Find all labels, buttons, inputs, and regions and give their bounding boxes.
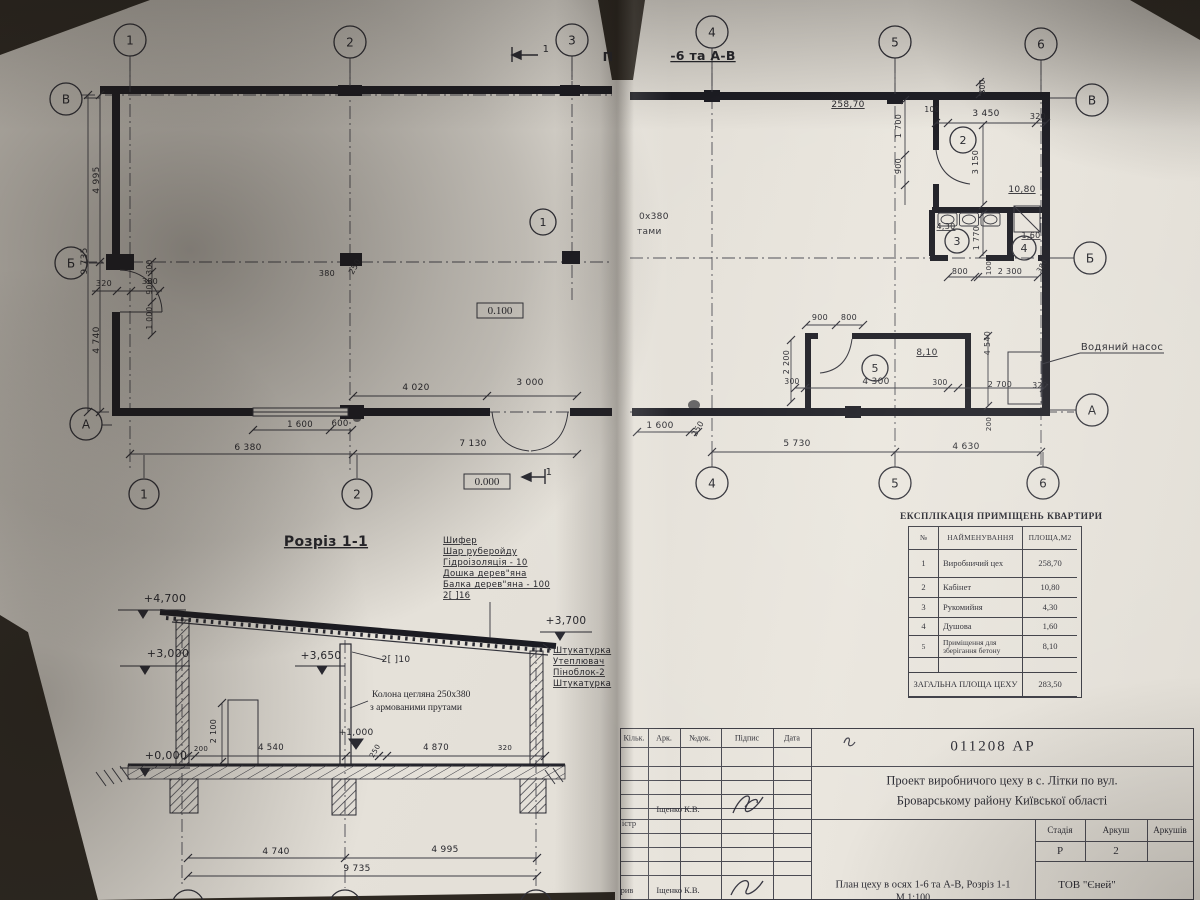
row-name: Виробничий цех: [939, 550, 1023, 578]
dim-label: з армованими прутами: [370, 703, 462, 713]
row-area: 1,60: [1023, 618, 1077, 636]
foundation: [332, 779, 356, 815]
dim-label: 4 540: [983, 331, 992, 355]
section-marker-label: 1: [543, 44, 550, 55]
wall-left-hatched: [176, 620, 189, 765]
axis-bubble: 1: [530, 209, 556, 235]
row-num: 2: [909, 578, 939, 598]
dim-label: Утеплювач: [553, 657, 604, 667]
svg-text:4: 4: [708, 476, 716, 490]
row-num: [909, 658, 939, 673]
title-block: Кільк. Арк. №док. Підпис Дата 011208 АР …: [620, 728, 1194, 900]
dim-label: 6 380: [234, 443, 261, 453]
svg-text:4: 4: [708, 25, 716, 39]
axis-bubble: 1: [129, 479, 159, 509]
dim-label: 800: [952, 267, 968, 276]
dim-label: +4,700: [144, 592, 187, 605]
roof-slab: [160, 612, 556, 646]
dim-label: 4 995: [431, 845, 458, 855]
dim-label: 9 735: [343, 864, 370, 874]
total-label: ЗАГАЛЬНА ПЛОЩА ЦЕХУ: [909, 673, 1023, 697]
right-plan: [630, 48, 1164, 467]
axis-bubble: 2: [950, 127, 976, 153]
dim-label: 5 730: [783, 439, 810, 449]
explication-title: ЕКСПЛІКАЦІЯ ПРИМІЩЕНЬ КВАРТИРИ: [900, 512, 1090, 522]
axis-bubble: [329, 890, 361, 900]
dim-label: Шифер: [443, 536, 477, 546]
svg-text:5: 5: [872, 362, 879, 375]
axis-bubble: 6: [1027, 467, 1059, 499]
row-name: Рукомийня: [939, 598, 1023, 618]
dim-label: 1 600: [646, 421, 673, 431]
dim-label: 200: [978, 79, 987, 94]
ink-blot: [688, 400, 700, 410]
column: [340, 644, 351, 765]
dim-label: 2 700: [988, 380, 1012, 389]
row-name: Душова: [939, 618, 1023, 636]
dim-label: 1 700: [894, 114, 903, 138]
dim-label: Колона цегляна 250х380: [372, 690, 471, 700]
water-pump-symbol: [1008, 352, 1164, 404]
dim-label: 900: [145, 279, 154, 294]
row-name: [939, 658, 1023, 673]
dim-label: 4 630: [952, 442, 979, 452]
dim-label: 300: [145, 259, 154, 274]
row-area: 10,80: [1023, 578, 1077, 598]
dim-label: 4 740: [92, 326, 102, 353]
svg-text:А: А: [82, 417, 91, 431]
level-label: 0.100: [488, 305, 513, 317]
svg-text:2: 2: [960, 134, 967, 147]
level-label: 0.000: [475, 476, 500, 488]
dim-label: 600: [331, 419, 348, 429]
foundation: [520, 779, 546, 813]
svg-text:3: 3: [568, 33, 576, 47]
section-cut-marker: [512, 47, 545, 484]
dimension-ticks: [184, 699, 549, 880]
svg-text:3: 3: [954, 235, 961, 248]
svg-text:2: 2: [346, 35, 354, 49]
svg-text:А: А: [1088, 403, 1097, 417]
total-area: 283,50: [1023, 673, 1077, 697]
axis-bubble: В: [1076, 84, 1108, 116]
note-fragment: тами: [637, 227, 662, 237]
row-name: Приміщення для зберігання бетону: [939, 636, 1023, 658]
col-header-name: НАЙМЕНУВАННЯ: [939, 527, 1023, 550]
svg-text:6: 6: [1039, 476, 1047, 490]
dim-label: 320: [1030, 112, 1046, 121]
photo-of-blueprint: П-6 та А-В4 9959 7354 7403203803009001 0…: [0, 0, 1200, 900]
dim-label: 2 300: [998, 267, 1022, 276]
dim-label: 4 540: [258, 743, 284, 753]
dim-label: Шар руберойду: [443, 547, 517, 557]
dim-label: 300: [932, 378, 947, 387]
svg-text:1: 1: [126, 33, 134, 47]
row-area: 4,30: [1023, 598, 1077, 618]
dim-label: 4 995: [92, 166, 102, 193]
explication-table: ЕКСПЛІКАЦІЯ ПРИМІЩЕНЬ КВАРТИРИ № НАЙМЕНУ…: [908, 512, 1084, 698]
dim-label: 4 020: [402, 383, 429, 393]
svg-text:Б: Б: [1086, 251, 1094, 265]
axis-bubble: 5: [879, 26, 911, 58]
svg-text:1: 1: [540, 216, 547, 229]
section-title: Розріз 1-1: [284, 534, 368, 550]
door-opening: [228, 700, 258, 765]
dim-label: 320: [1032, 381, 1047, 390]
wall-right-hatched: [530, 651, 543, 765]
dim-label: 3 450: [972, 109, 999, 119]
dim-label: 800: [841, 313, 857, 322]
dim-label: 258,70: [831, 100, 864, 110]
axis-bubble: 1: [114, 24, 146, 56]
dim-label: 320: [96, 279, 112, 288]
axis-bubble: А: [70, 408, 102, 440]
foundation: [170, 779, 198, 813]
axis-bubble: 3: [556, 24, 588, 56]
axis-bubble: 2: [334, 26, 366, 58]
dim-label: 320: [498, 744, 512, 752]
window-symbol: [253, 408, 348, 416]
svg-text:4: 4: [1021, 242, 1028, 255]
row-area: 258,70: [1023, 550, 1077, 578]
section-drawing: [96, 602, 592, 888]
dim-label: 4 870: [423, 743, 449, 753]
column-blocks: [106, 85, 580, 419]
dim-label: 200: [194, 745, 208, 753]
row-num: 3: [909, 598, 939, 618]
row-num: 4: [909, 618, 939, 636]
dim-label: +3,000: [147, 647, 190, 660]
axis-bubble: 5: [879, 467, 911, 499]
axis-bubble: 4: [696, 467, 728, 499]
svg-text:В: В: [62, 92, 70, 106]
dim-label: Дошка дерев"яна: [443, 569, 527, 579]
dim-label: 3 150: [971, 150, 980, 174]
dim-label: 1 600: [287, 420, 313, 430]
dim-label: 250: [368, 743, 382, 759]
svg-text:Б: Б: [67, 256, 75, 270]
dim-label: 1 770: [972, 226, 981, 250]
dim-label: 100: [924, 105, 939, 114]
dim-label: Балка дерев"яна - 100: [443, 580, 550, 590]
axis-bubble: В: [50, 83, 82, 115]
sheet-title-fragment: -6 та А-В: [670, 48, 735, 63]
section-marker-label: 1: [546, 467, 553, 478]
axis-bubble: 6: [1025, 28, 1057, 60]
axis-bubble: 3: [945, 229, 969, 253]
dim-label: +1,000: [338, 728, 373, 738]
walls: [100, 86, 612, 416]
svg-text:6: 6: [1037, 37, 1045, 51]
note-fragment: 0х380: [639, 212, 669, 222]
dim-label: 4 740: [262, 847, 289, 857]
note-water-pump: Водяний насос: [1081, 342, 1163, 353]
axis-bubble: А: [1076, 394, 1108, 426]
axis-bubble: Б: [1074, 242, 1106, 274]
sheet-title-fragment: П: [603, 49, 614, 64]
dim-label: 380: [319, 269, 335, 278]
axis-bubble: 4: [696, 16, 728, 48]
handwritten-signatures: [621, 729, 1193, 899]
dim-label: 10,80: [1008, 185, 1035, 195]
row-name: Кабінет: [939, 578, 1023, 598]
dim-label: 1 000: [145, 307, 154, 330]
dim-label: 8,10: [916, 348, 937, 358]
row-area: 8,10: [1023, 636, 1077, 658]
dim-label: Піноблок-2: [553, 668, 605, 678]
dim-label: +0,000: [145, 749, 188, 762]
dim-label: 2[ ]10: [382, 655, 411, 665]
dim-label: 2[ ]16: [443, 591, 470, 601]
row-area: [1023, 658, 1077, 673]
dim-label: 900: [894, 158, 903, 174]
dim-label: Гідроізоляція - 10: [443, 558, 528, 568]
walls: [630, 92, 1050, 412]
dim-label: Штукатурка: [553, 646, 611, 656]
axis-bubble: 2: [342, 479, 372, 509]
dim-label: 3 000: [516, 378, 543, 388]
ink-blot: [847, 406, 857, 414]
dim-label: 100: [985, 261, 993, 275]
svg-text:5: 5: [891, 476, 899, 490]
dim-label: 900: [812, 313, 828, 322]
dim-label: 250: [690, 419, 706, 438]
dim-label: 300: [784, 377, 799, 386]
dim-label: 2 100: [209, 719, 218, 743]
floor-hatch-band: [128, 765, 565, 779]
axis-bubble: [520, 890, 552, 900]
row-num: 1: [909, 550, 939, 578]
dim-label: Штукатурка: [553, 679, 611, 689]
row-num: 5: [909, 636, 939, 658]
dim-label: +3,650: [301, 650, 342, 662]
dim-label: 7 130: [459, 439, 486, 449]
svg-text:5: 5: [891, 35, 899, 49]
dim-label: 2 200: [782, 350, 791, 374]
col-header-area: ПЛОЩА,М2: [1023, 527, 1077, 550]
svg-text:В: В: [1088, 93, 1096, 107]
dim-label: 200: [985, 417, 993, 431]
svg-text:2: 2: [353, 487, 361, 501]
ink-blot: [353, 416, 361, 422]
explication-grid: № НАЙМЕНУВАННЯ ПЛОЩА,М2 1 Виробничий цех…: [908, 526, 1082, 698]
dim-label: +3,700: [546, 615, 587, 627]
roof-hatch: [166, 618, 552, 651]
col-header-num: №: [909, 527, 939, 550]
axis-bubble: [172, 890, 204, 900]
svg-text:1: 1: [140, 487, 148, 501]
